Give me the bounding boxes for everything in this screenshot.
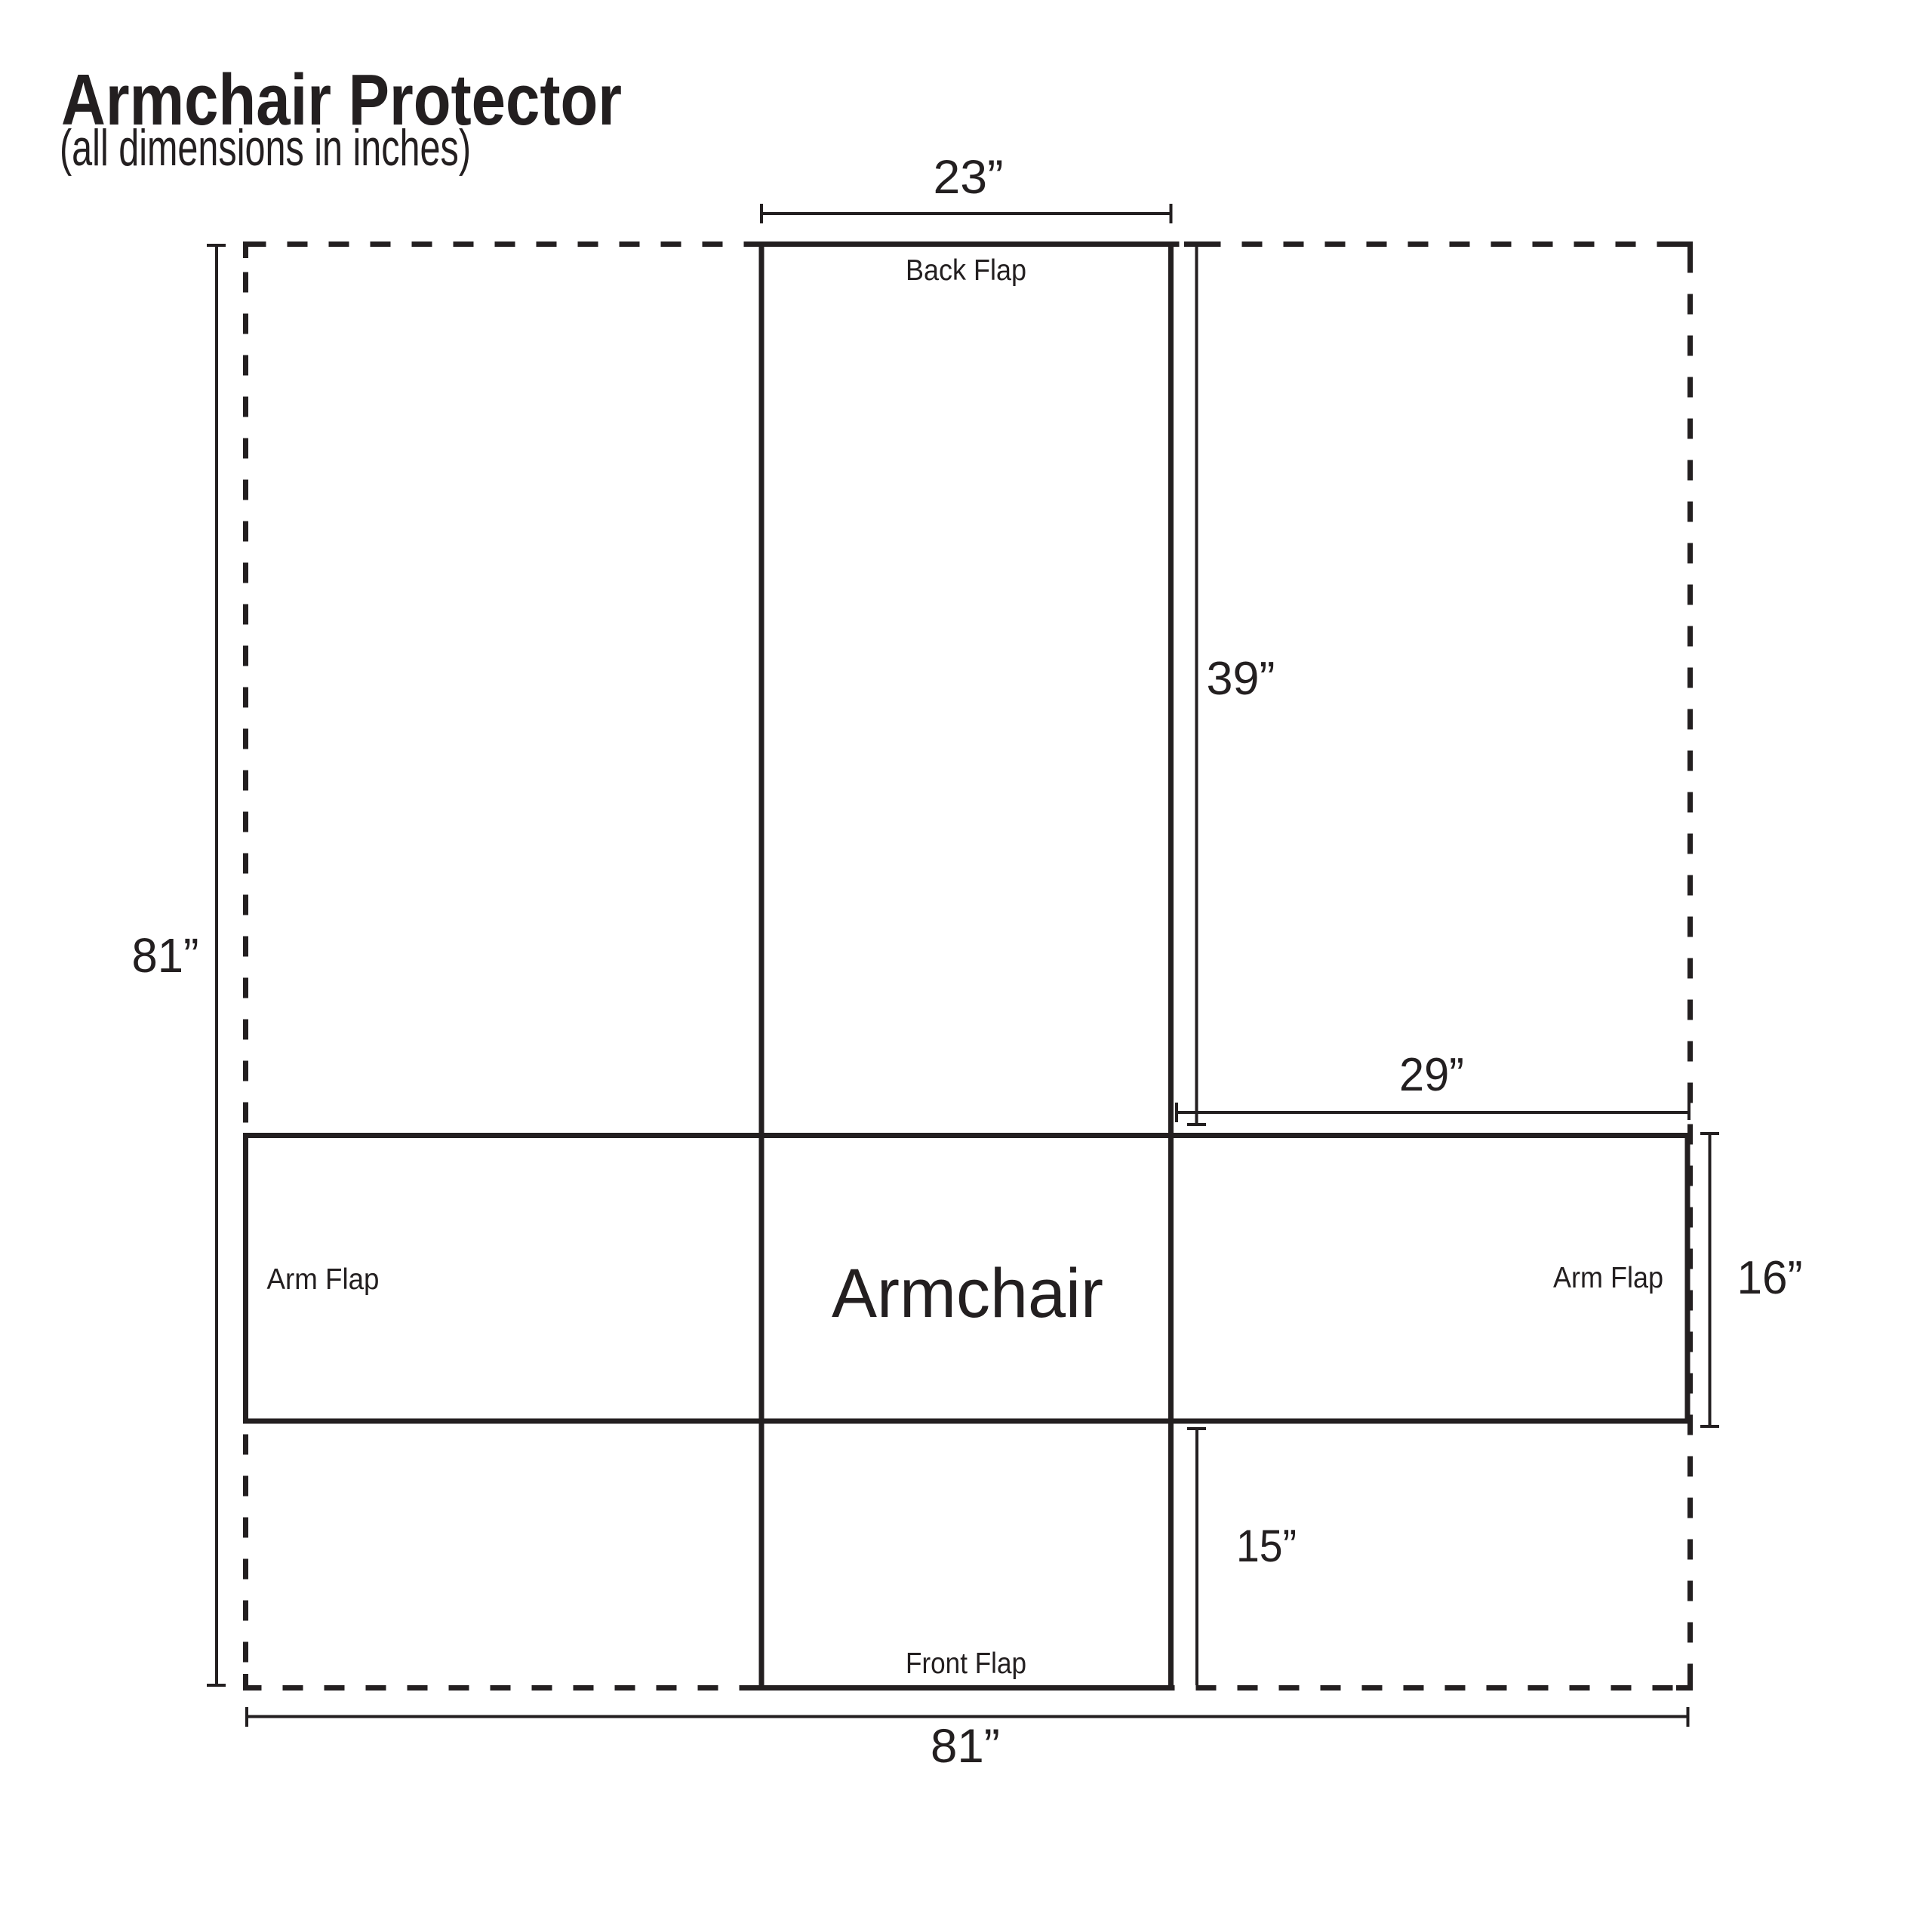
svg-text:16”: 16” (1737, 1252, 1803, 1304)
svg-text:Arm Flap: Arm Flap (1553, 1262, 1663, 1294)
svg-text:Front Flap: Front Flap (906, 1647, 1026, 1680)
svg-text:23”: 23” (934, 151, 1004, 204)
svg-text:39”: 39” (1207, 653, 1275, 705)
svg-text:Back Flap: Back Flap (906, 254, 1026, 287)
svg-text:(all dimensions in inches): (all dimensions in inches) (60, 119, 471, 177)
svg-text:15”: 15” (1236, 1521, 1297, 1571)
svg-text:81”: 81” (931, 1720, 1000, 1773)
svg-text:Armchair: Armchair (832, 1255, 1103, 1332)
svg-text:29”: 29” (1399, 1049, 1464, 1101)
svg-text:Arm Flap: Arm Flap (267, 1263, 380, 1296)
svg-text:81”: 81” (132, 928, 199, 983)
